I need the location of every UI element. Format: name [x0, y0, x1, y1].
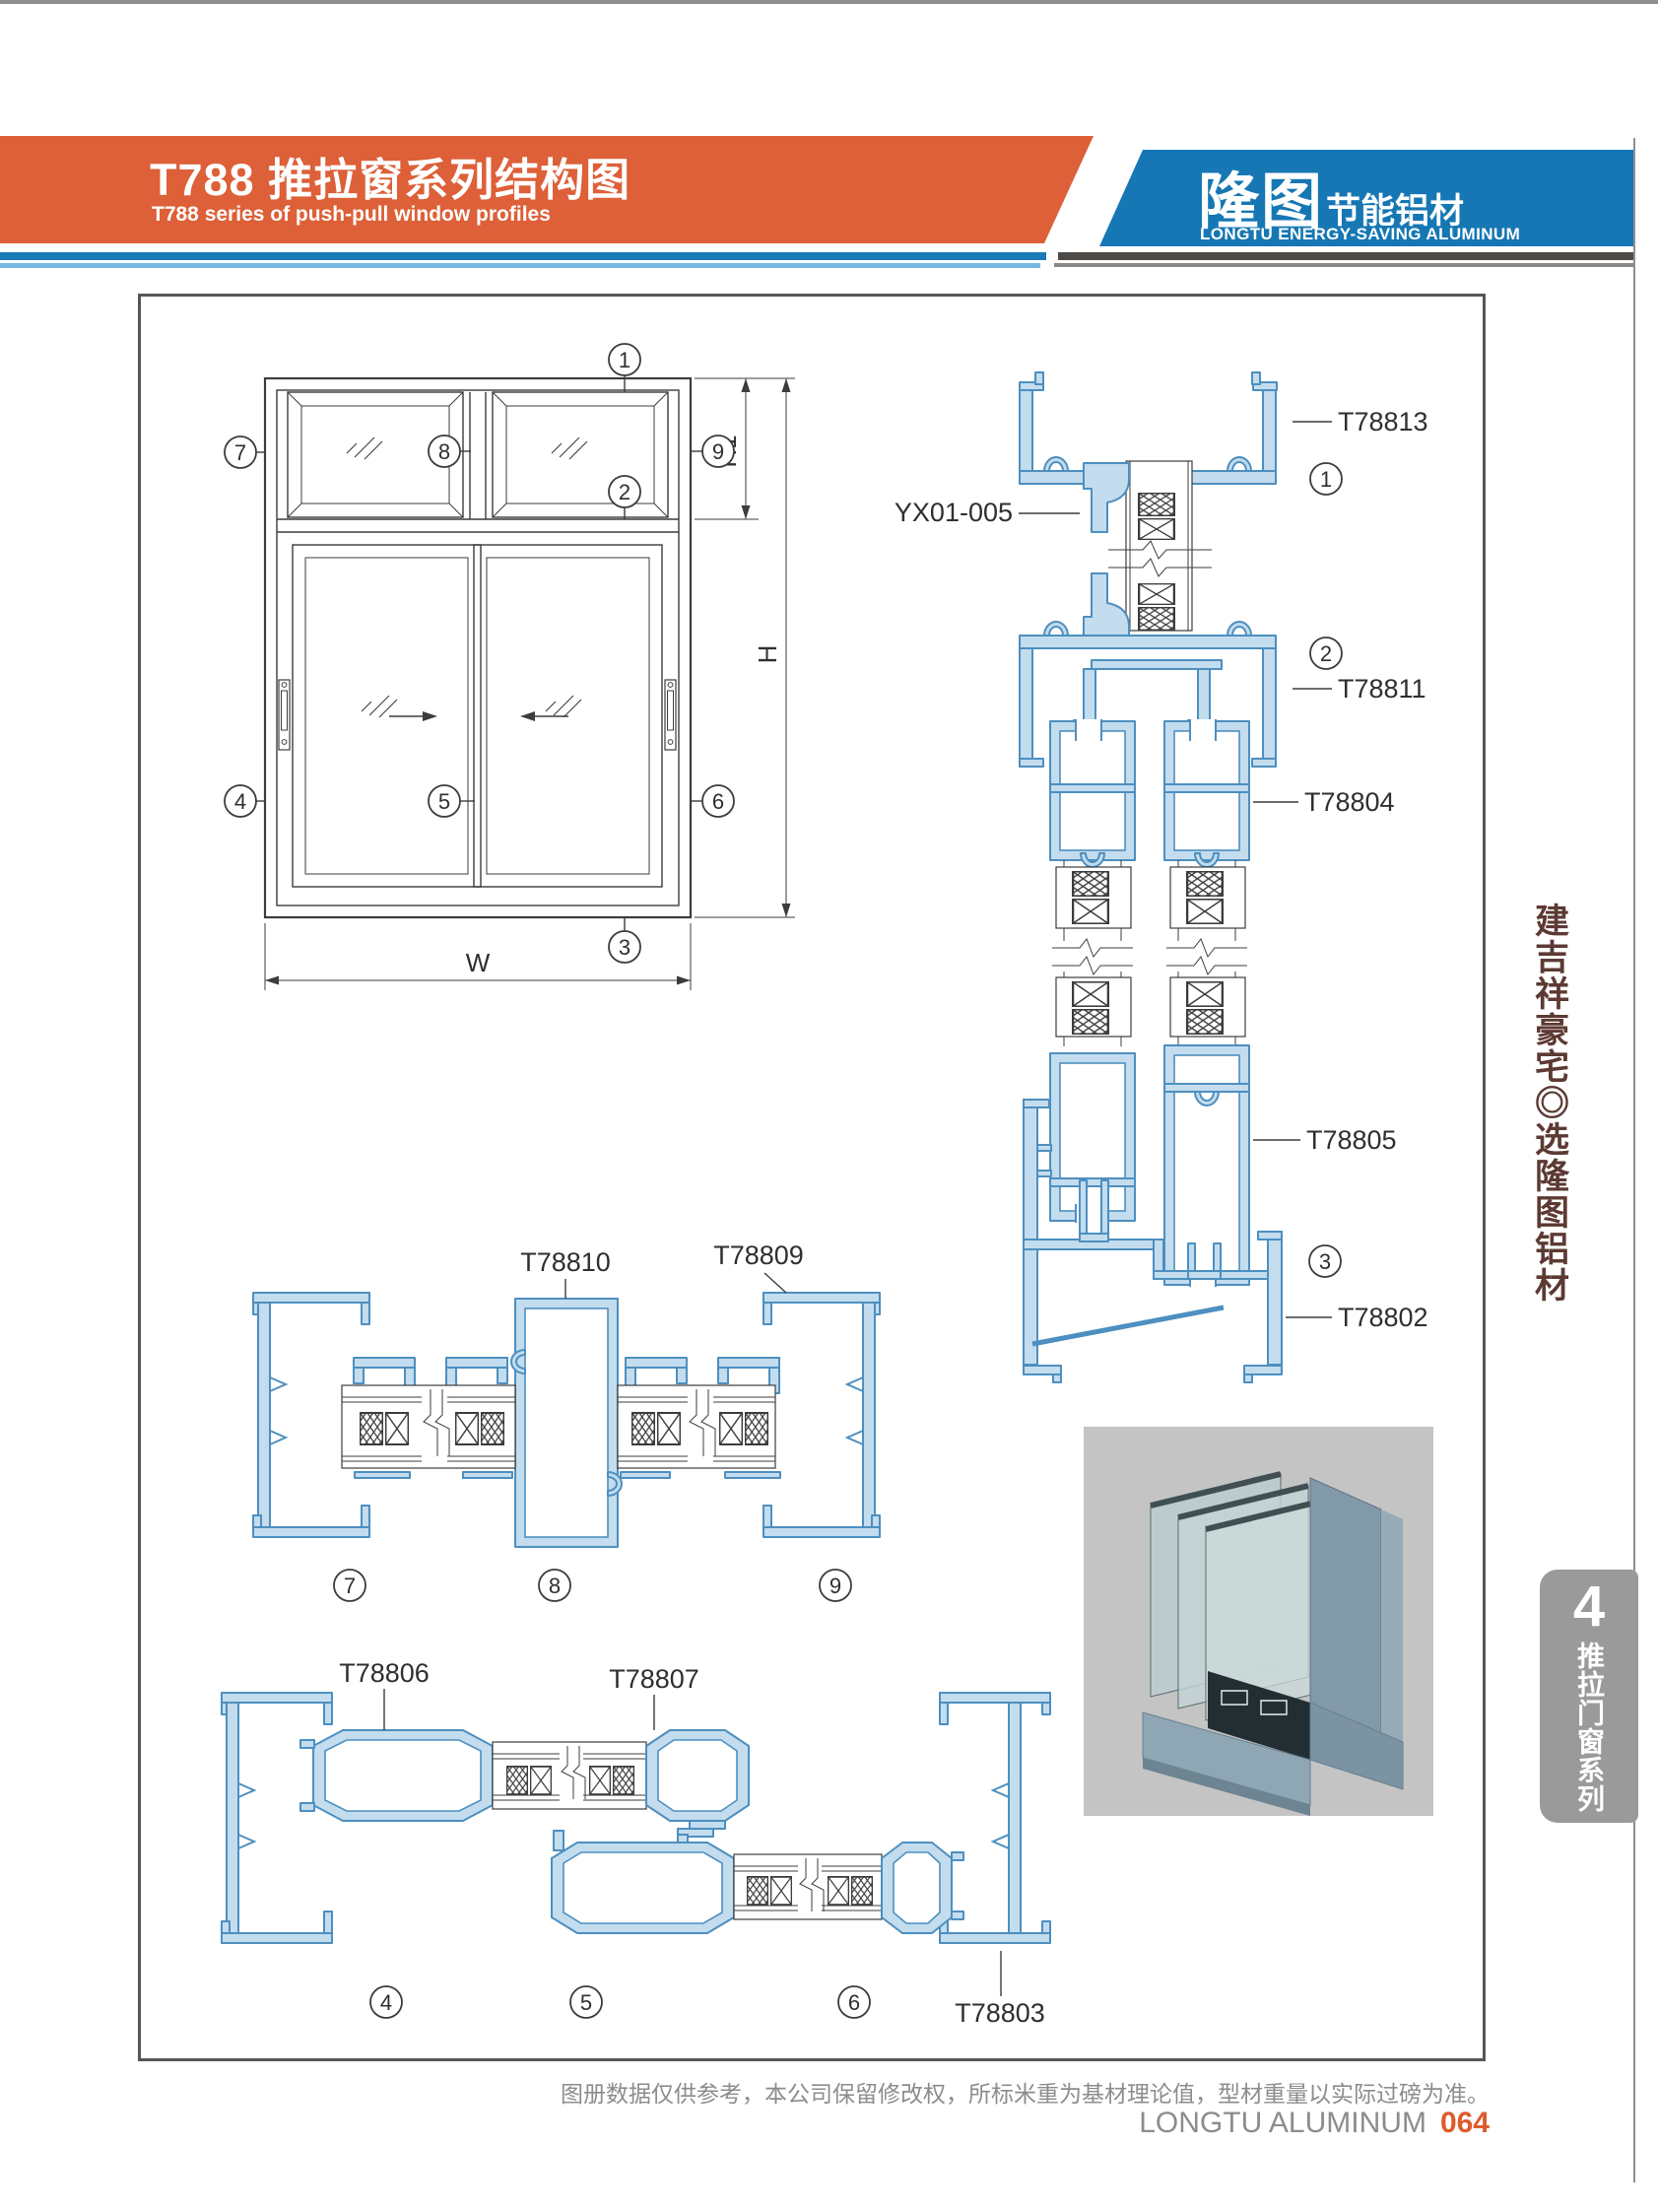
callout-b4: 4 — [380, 1990, 392, 2015]
footer-brand: LONGTU ALUMINUM064 — [1139, 2107, 1490, 2140]
technical-drawings: W H H1 1 2 3 — [138, 294, 1486, 2061]
sash-glass-runs — [1052, 860, 1247, 1046]
bottom-glass-upper — [493, 1742, 646, 1809]
header-rule-gray-light — [1054, 263, 1633, 267]
label-t78811: T78811 — [1338, 674, 1426, 704]
series-tab-number: 4 — [1573, 1577, 1605, 1638]
callout-9: 9 — [712, 439, 724, 464]
callout-1: 1 — [619, 348, 630, 372]
slide-direction-arrows — [389, 711, 568, 721]
label-yx01-005: YX01-005 — [895, 498, 1013, 527]
label-t78804: T78804 — [1304, 787, 1395, 817]
sash-handle-right — [665, 680, 676, 750]
page-title: T788 推拉窗系列结构图 — [150, 144, 630, 208]
label-t78807: T78807 — [609, 1664, 699, 1694]
page-subtitle: T788 series of push-pull window profiles — [152, 203, 551, 227]
window-elevation: W H H1 1 2 3 — [225, 344, 795, 990]
bracket-yx01-005-mirror — [1084, 573, 1129, 642]
header-rule-gray-dark — [1058, 252, 1633, 260]
callout-4: 4 — [234, 789, 246, 814]
mid-horizontal-section: T78810 T78809 7 8 9 — [253, 1240, 880, 1601]
page-number: 064 — [1440, 2107, 1490, 2139]
bracket-yx01-005 — [1084, 463, 1129, 532]
profile-t78806 — [300, 1730, 493, 1821]
dim-h-label: H — [753, 645, 782, 664]
glass-mark — [552, 437, 587, 459]
profile-t78804 — [1050, 719, 1249, 867]
page-top-rule — [0, 0, 1658, 4]
label-t78813: T78813 — [1338, 407, 1428, 436]
callout-v2: 2 — [1320, 641, 1332, 666]
callout-5: 5 — [438, 789, 450, 814]
bottom-lower-row — [552, 1831, 963, 1933]
vertical-section: T78813 1 YX01-005 2 T78811 T78804 T78805… — [895, 372, 1428, 1382]
callout-m7: 7 — [344, 1574, 356, 1598]
label-t78803: T78803 — [955, 1998, 1045, 2028]
callout-v3: 3 — [1319, 1249, 1331, 1274]
label-t78805: T78805 — [1306, 1125, 1397, 1155]
label-t78810: T78810 — [520, 1247, 611, 1277]
callout-2: 2 — [619, 480, 630, 504]
callout-8: 8 — [438, 439, 450, 464]
callout-b6: 6 — [848, 1990, 860, 2015]
callout-b5: 5 — [580, 1990, 592, 2015]
mid-glass-left — [342, 1385, 515, 1468]
page-right-rule — [1633, 138, 1635, 2182]
label-t78809: T78809 — [713, 1240, 804, 1270]
callout-7: 7 — [234, 440, 246, 465]
sidebar-slogan: 建吉祥豪宅◎选隆图铝材 — [1524, 903, 1574, 1307]
callout-m8: 8 — [549, 1574, 561, 1598]
header-rule-blue-light — [0, 263, 1040, 268]
label-t78806: T78806 — [339, 1658, 430, 1688]
callout-m9: 9 — [829, 1574, 841, 1598]
profile-t78807 — [646, 1730, 749, 1844]
glass-mark — [546, 696, 581, 717]
mid-glass-right — [618, 1385, 775, 1468]
catalog-page: T788 推拉窗系列结构图 T788 series of push-pull w… — [0, 0, 1658, 2212]
callout-6: 6 — [712, 789, 724, 814]
profile-t78810 — [511, 1299, 622, 1547]
dim-w-label: W — [466, 948, 491, 977]
glass-mark — [362, 696, 397, 717]
glass-mark — [347, 437, 382, 459]
label-t78802: T78802 — [1338, 1303, 1428, 1332]
series-tab-label: 推拉门窗系列 — [1569, 1642, 1609, 1813]
footer-brand-name: LONGTU ALUMINUM — [1139, 2107, 1426, 2139]
callout-v1: 1 — [1320, 467, 1332, 492]
footer-disclaimer: 图册数据仅供参考，本公司保留修改权，所标米重为基材理论值，型材重量以实际过磅为准… — [561, 2075, 1490, 2109]
header-rule-blue-dark — [0, 252, 1046, 260]
header-brand-band: 隆图 节能铝材 LONGTU ENERGY-SAVING ALUMINUM — [1099, 150, 1633, 246]
callout-3: 3 — [619, 935, 630, 960]
bottom-left-jamb — [222, 1693, 332, 1943]
mid-right-jamb — [763, 1293, 880, 1537]
brand-english: LONGTU ENERGY-SAVING ALUMINUM — [1200, 225, 1520, 244]
bottom-horizontal-section: T78806 T78807 4 5 6 T78803 — [222, 1658, 1050, 2028]
profile-3d-render — [1084, 1427, 1433, 1816]
profile-t78803 — [940, 1693, 1050, 1943]
sash-handle-left — [279, 680, 290, 750]
series-tab: 4 推拉门窗系列 — [1540, 1570, 1638, 1823]
